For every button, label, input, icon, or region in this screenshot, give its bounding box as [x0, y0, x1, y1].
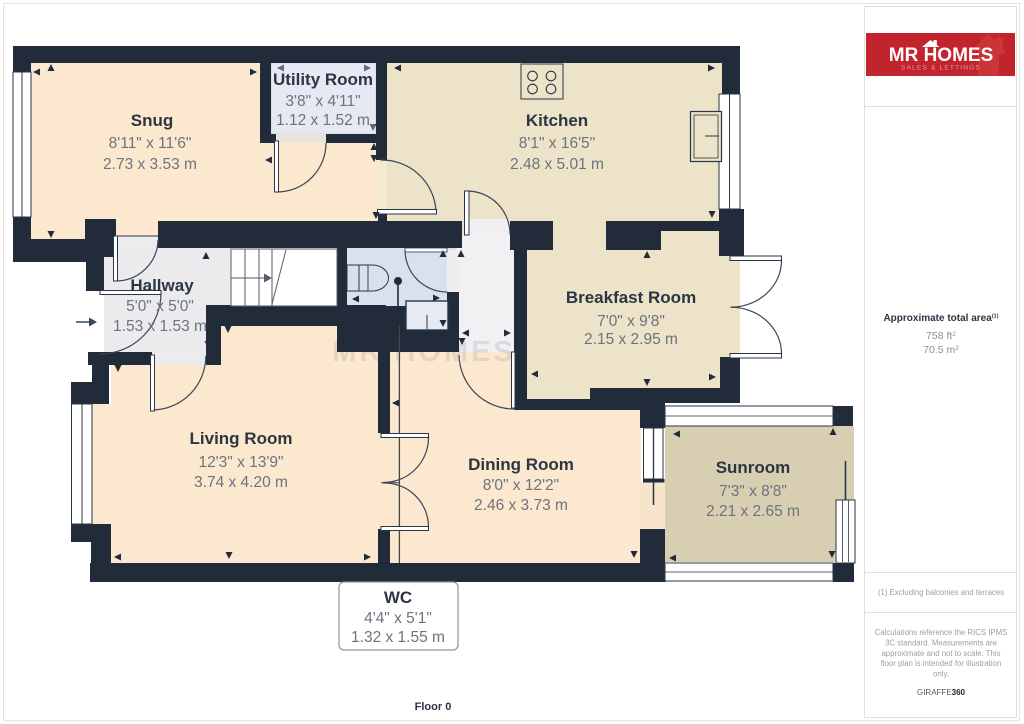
- svg-text:1.53 x 1.53 m: 1.53 x 1.53 m: [113, 318, 207, 335]
- svg-text:3'8" x 4'11": 3'8" x 4'11": [285, 93, 360, 110]
- svg-text:3.74 x 4.20 m: 3.74 x 4.20 m: [194, 474, 288, 491]
- svg-text:12'3" x 13'9": 12'3" x 13'9": [198, 454, 283, 471]
- svg-text:WC: WC: [384, 588, 412, 607]
- svg-text:1.32 x 1.55 m: 1.32 x 1.55 m: [351, 629, 445, 646]
- svg-text:Snug: Snug: [131, 111, 174, 130]
- svg-text:Calculations reference the RIC: Calculations reference the RICS IPMS: [875, 628, 1008, 637]
- svg-text:8'1" x 16'5": 8'1" x 16'5": [519, 135, 595, 152]
- svg-text:2.15 x 2.95 m: 2.15 x 2.95 m: [584, 331, 678, 348]
- svg-text:4'4" x 5'1": 4'4" x 5'1": [364, 610, 432, 627]
- svg-text:Kitchen: Kitchen: [526, 111, 588, 130]
- svg-text:only.: only.: [933, 670, 949, 679]
- svg-text:5'0" x 5'0": 5'0" x 5'0": [126, 298, 194, 315]
- svg-text:(1) Excluding balconies and te: (1) Excluding balconies and terraces: [878, 588, 1004, 597]
- svg-text:Approximate total area(1): Approximate total area(1): [883, 313, 998, 324]
- svg-text:70.5 m2: 70.5 m2: [923, 344, 959, 356]
- svg-text:Hallway: Hallway: [130, 276, 194, 295]
- svg-text:Living Room: Living Room: [190, 429, 293, 448]
- svg-text:3C standard. Measurements are: 3C standard. Measurements are: [885, 639, 997, 648]
- svg-text:7'3" x 8'8": 7'3" x 8'8": [719, 483, 787, 500]
- svg-text:2.46 x 3.73 m: 2.46 x 3.73 m: [474, 497, 568, 514]
- svg-text:2.73 x 3.53 m: 2.73 x 3.53 m: [103, 156, 197, 173]
- svg-text:758 ft2: 758 ft2: [926, 330, 956, 342]
- svg-text:GIRAFFE360: GIRAFFE360: [917, 688, 966, 697]
- svg-text:MR HOMES: MR HOMES: [889, 45, 994, 66]
- svg-text:8'11" x 11'6": 8'11" x 11'6": [109, 135, 192, 152]
- svg-text:floor plan is intended for ill: floor plan is intended for illustration: [881, 659, 1002, 668]
- svg-text:approximate and not to scale.: approximate and not to scale. This: [881, 649, 1000, 658]
- svg-text:Sunroom: Sunroom: [716, 458, 791, 477]
- svg-text:1.12 x 1.52 m: 1.12 x 1.52 m: [276, 112, 370, 129]
- svg-text:Utility Room: Utility Room: [273, 70, 373, 89]
- svg-text:Breakfast Room: Breakfast Room: [566, 288, 696, 307]
- svg-text:Dining Room: Dining Room: [468, 455, 574, 474]
- svg-text:SALES & LETTINGS: SALES & LETTINGS: [901, 65, 981, 72]
- svg-text:2.48 x 5.01 m: 2.48 x 5.01 m: [510, 156, 604, 173]
- svg-text:Floor 0: Floor 0: [415, 701, 452, 713]
- svg-text:7'0" x 9'8": 7'0" x 9'8": [597, 313, 665, 330]
- svg-text:2.21 x 2.65 m: 2.21 x 2.65 m: [706, 503, 800, 520]
- svg-text:8'0" x 12'2": 8'0" x 12'2": [483, 477, 559, 494]
